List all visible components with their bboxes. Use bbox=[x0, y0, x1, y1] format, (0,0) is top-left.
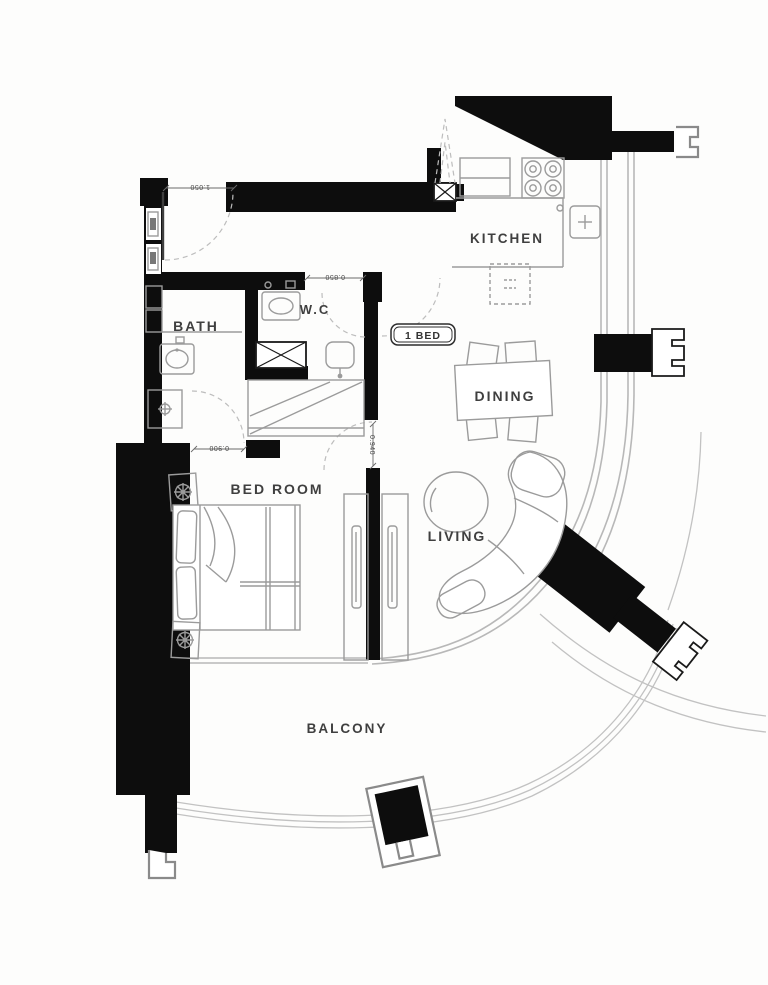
duct-shaft-kitchen bbox=[434, 183, 456, 201]
dimension-entry: 1.050 bbox=[163, 183, 237, 191]
dimension-bedroom-value: 0.940 bbox=[368, 435, 375, 455]
bath-vanity-sink bbox=[160, 337, 194, 374]
kitchen-counter bbox=[460, 158, 510, 196]
wall-top-right-band bbox=[612, 131, 674, 152]
wall-end-hook-southwest bbox=[149, 850, 175, 878]
wc-toilet bbox=[326, 342, 354, 378]
entry-door bbox=[163, 192, 233, 260]
facade-fin-east bbox=[594, 329, 684, 376]
room-label-dining: DINING bbox=[475, 388, 536, 404]
wall-end-cap-northeast bbox=[676, 127, 698, 157]
dimension-wc-value: 0.850 bbox=[325, 273, 345, 280]
dimension-bath-value: 0.900 bbox=[209, 444, 229, 451]
bath-door bbox=[192, 391, 244, 443]
dimension-wc: 0.850 bbox=[304, 273, 366, 281]
floor-plan-svg: 1 BED bbox=[0, 0, 768, 985]
unit-type-badge: 1 BED bbox=[391, 324, 455, 345]
room-label-wc: W.C bbox=[300, 302, 331, 317]
floor-plan-page: 1 BED bbox=[0, 0, 768, 985]
stove bbox=[522, 158, 564, 198]
wall-shaft-base-left bbox=[414, 184, 434, 201]
room-label-living: LIVING bbox=[428, 528, 487, 544]
kitchen-island bbox=[490, 264, 530, 304]
room-label-bedroom: BED ROOM bbox=[231, 481, 324, 497]
balcony-pier bbox=[366, 777, 439, 867]
hallway-closet bbox=[248, 380, 364, 436]
room-label-balcony: BALCONY bbox=[307, 721, 388, 736]
wall-bath-north bbox=[144, 272, 305, 290]
wall-bedroom-north bbox=[246, 440, 280, 458]
duct-shaft-bath bbox=[256, 342, 306, 368]
walls bbox=[116, 96, 674, 853]
bed bbox=[173, 505, 300, 630]
dimension-bath: 0.900 bbox=[191, 444, 247, 452]
wall-wc-east bbox=[364, 290, 378, 420]
room-label-kitchen: KITCHEN bbox=[470, 231, 544, 246]
dimension-bedroom-door: 0.940 bbox=[368, 421, 376, 469]
wall-shaft-vertical bbox=[427, 148, 441, 186]
wall-kitchen-mass bbox=[455, 96, 612, 160]
unit-type-badge-label: 1 BED bbox=[405, 330, 441, 342]
bedroom-door bbox=[324, 422, 372, 470]
stove-burners bbox=[525, 161, 561, 196]
dimension-entry-value: 1.050 bbox=[190, 183, 210, 190]
bedroom-window bbox=[190, 658, 368, 663]
coffee-table bbox=[424, 472, 488, 532]
wall-stem-south bbox=[145, 795, 177, 853]
room-label-bath: BATH bbox=[173, 318, 219, 334]
